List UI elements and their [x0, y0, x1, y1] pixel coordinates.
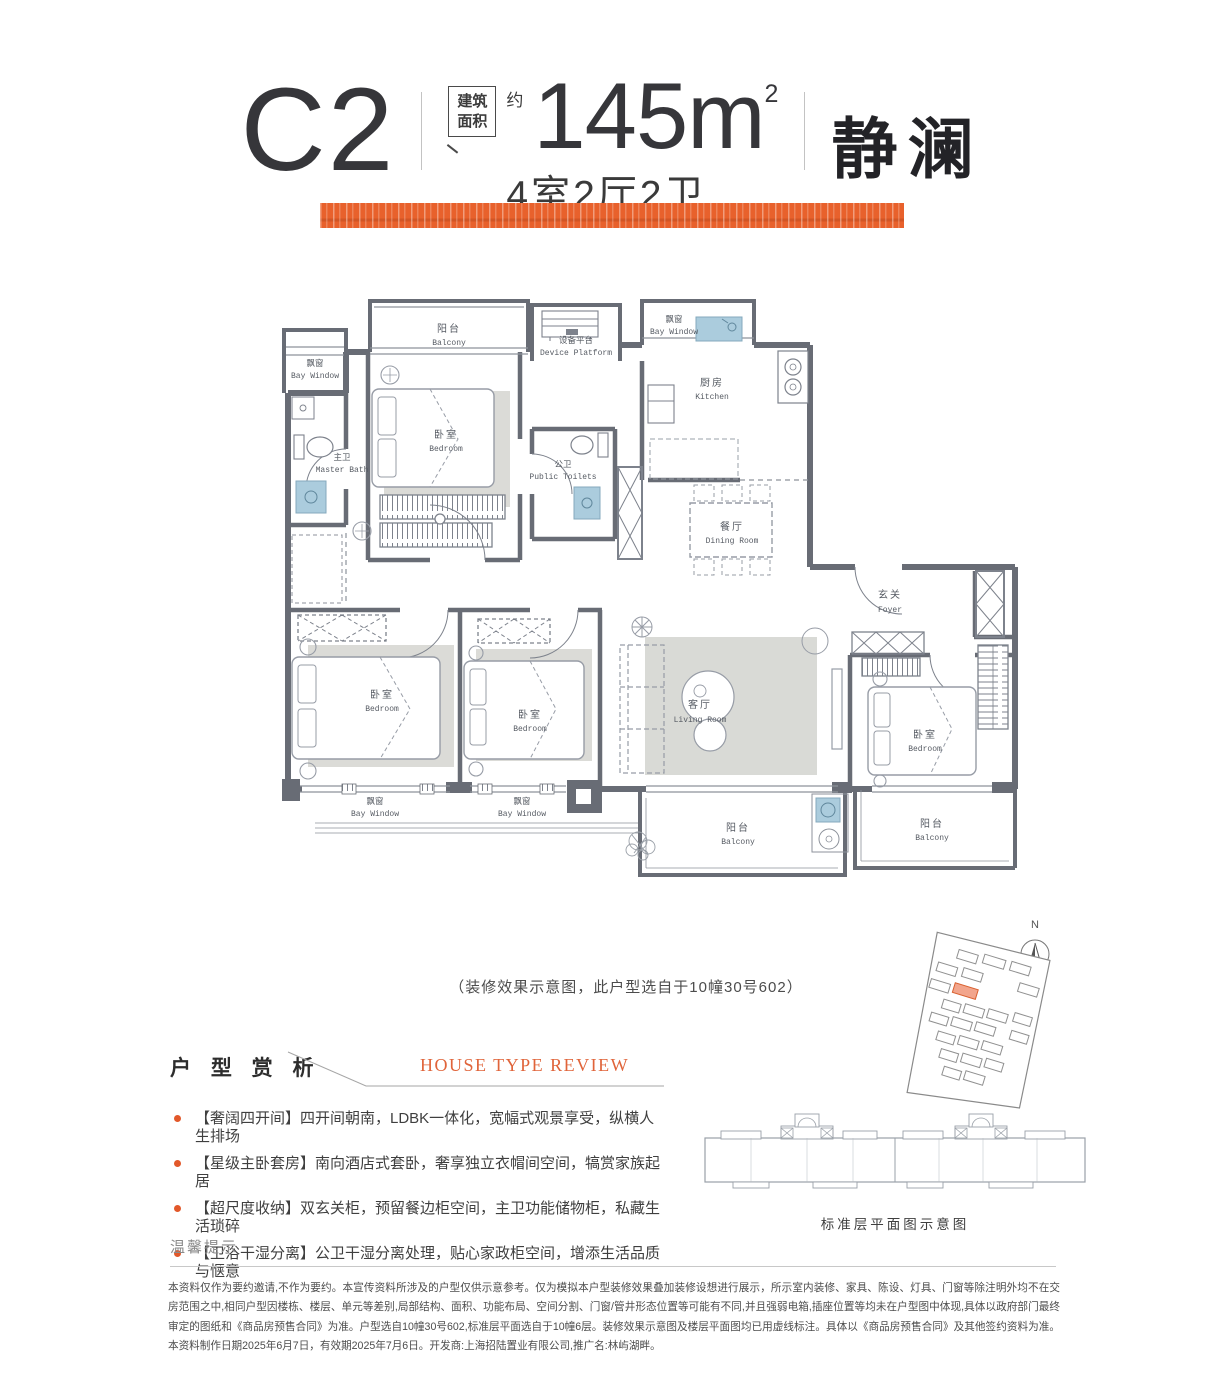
svg-text:卧室: 卧室 [913, 728, 937, 741]
svg-text:Bay Window: Bay Window [650, 328, 698, 337]
area-block: 建筑 面积 约 145m 2 4室2厅2卫 [448, 76, 778, 220]
room-label-bay-window-bm: 飘窗 Bay Window [498, 796, 546, 819]
svg-text:Bay Window: Bay Window [291, 372, 339, 381]
master-bath-fixtures [292, 397, 333, 513]
svg-text:Balcony: Balcony [915, 834, 949, 843]
svg-text:飘窗: 飘窗 [513, 796, 530, 806]
svg-text:阳台: 阳台 [437, 322, 461, 335]
svg-text:飘窗: 飘窗 [366, 796, 383, 806]
flyer-page: C2 建筑 面积 约 145m 2 4室2厅2卫 静澜 [0, 0, 1224, 1400]
washer-icon [812, 794, 848, 852]
review-bullets: 【奢阔四开间】四开间朝南，LDBK一体化，宽幅式观景享受，纵横人生排场 【星级主… [170, 1110, 664, 1281]
svg-text:餐厅: 餐厅 [720, 520, 744, 533]
svg-text:飘窗: 飘窗 [665, 314, 682, 324]
room-label-public-toilets: 公卫 Public Toilets [529, 459, 596, 482]
area-approx: 约 [506, 86, 523, 111]
stove-icon [778, 351, 808, 403]
svg-text:Balcony: Balcony [721, 838, 755, 847]
header-divider [421, 92, 422, 170]
unit-name: 静澜 [831, 96, 983, 192]
svg-text:客厅: 客厅 [688, 698, 712, 711]
svg-text:阳台: 阳台 [726, 821, 750, 834]
svg-text:Bay Window: Bay Window [351, 810, 399, 819]
svg-text:卧室: 卧室 [370, 688, 394, 701]
svg-text:Kitchen: Kitchen [695, 393, 729, 402]
review-bullet: 【奢阔四开间】四开间朝南，LDBK一体化，宽幅式观景享受，纵横人生排场 [170, 1110, 664, 1146]
svg-text:Living Room: Living Room [674, 716, 727, 725]
tips-title: 温馨提示 [170, 1236, 238, 1257]
unit-code: C2 [241, 76, 396, 185]
review-section: 户 型 赏 析 HOUSE TYPE REVIEW 【奢阔四开间】四开间朝南，L… [170, 1046, 664, 1290]
site-boundary [890, 927, 1063, 1117]
site-plan: N [885, 912, 1095, 1117]
svg-text:阳台: 阳台 [920, 817, 944, 830]
bed-icons [292, 366, 976, 787]
room-label-balcony-br: 阳台 Balcony [915, 817, 949, 843]
room-label-kitchen: 厨房 Kitchen [695, 376, 729, 402]
svg-text:Dining Room: Dining Room [706, 537, 759, 546]
floor-plate-drawing [693, 1104, 1097, 1204]
floor-plate-caption: 标准层平面图示意图 [693, 1213, 1097, 1233]
room-label-balcony-top: 阳台 Balcony [432, 322, 466, 348]
bullet-dot-icon [174, 1115, 181, 1122]
svg-text:Public Toilets: Public Toilets [529, 473, 596, 482]
svg-text:Bedroom: Bedroom [365, 705, 399, 714]
fridge-icon [648, 385, 674, 423]
standard-floor-plate: 标准层平面图示意图 [693, 1104, 1097, 1233]
review-bullet: 【卫浴干湿分离】公卫干湿分离处理，贴心家政柜空间，增添生活品质与惬意 [170, 1245, 664, 1281]
area-sup: 2 [765, 80, 779, 109]
bullet-dot-icon [174, 1160, 181, 1167]
svg-text:玄关: 玄关 [878, 588, 902, 601]
room-label-bay-window-bl: 飘窗 Bay Window [351, 796, 399, 819]
header-divider [804, 92, 805, 170]
svg-text:N: N [1031, 919, 1039, 931]
review-title-en: HOUSE TYPE REVIEW [420, 1055, 629, 1076]
room-label-bay-window-tl: 飘窗 Bay Window [291, 358, 339, 381]
review-header: 户 型 赏 析 HOUSE TYPE REVIEW [170, 1046, 664, 1092]
orange-banner [320, 203, 904, 228]
svg-text:Bedroom: Bedroom [429, 445, 463, 454]
review-bullet: 【星级主卧套房】南向酒店式套卧，奢享独立衣帽间空间，犒赏家族起居 [170, 1155, 664, 1191]
kitchen-sink-icon [696, 317, 742, 341]
svg-text:设备平台: 设备平台 [559, 335, 593, 345]
plan-caption: （装修效果示意图，此户型选自于10幢30号602） [286, 976, 966, 997]
svg-text:Master Bath: Master Bath [316, 466, 369, 475]
disclaimer-text: 本资料仅作为要约邀请,不作为要约。本宣传资料所涉及的户型仅供示意参考。仅为模拟本… [168, 1279, 1060, 1356]
svg-text:Device Platform: Device Platform [540, 349, 612, 358]
svg-text:Bay Window: Bay Window [498, 810, 546, 819]
room-label-foyer: 玄关 Foyer [878, 588, 902, 615]
svg-text:卧室: 卧室 [434, 428, 458, 441]
svg-text:主卫: 主卫 [333, 452, 351, 462]
tv-cabinet-icon [832, 669, 842, 749]
review-bullet: 【超尺度收纳】双玄关柜，预留餐边柜空间，主卫功能储物柜，私藏生活琐碎 [170, 1200, 664, 1236]
svg-text:公卫: 公卫 [554, 459, 572, 469]
bullet-dot-icon [174, 1205, 181, 1212]
svg-text:Bedroom: Bedroom [513, 725, 547, 734]
svg-text:厨房: 厨房 [700, 376, 724, 389]
svg-text:飘窗: 飘窗 [306, 358, 323, 368]
kitchen-counter-icon [650, 439, 738, 479]
area-label-line2: 面积 [457, 112, 487, 132]
area-label-line1: 建筑 [457, 92, 487, 112]
svg-text:Balcony: Balcony [432, 339, 466, 348]
room-label-balcony-mid: 阳台 Balcony [721, 821, 755, 847]
area-label-tail [447, 144, 458, 153]
area-value: 145m [533, 76, 764, 156]
floor-plan: 飘窗 Bay Window 阳台 Balcony 设备平台 Device Pla… [280, 289, 1036, 885]
room-label-bay-window-tr: 飘窗 Bay Window [650, 314, 698, 337]
svg-text:Foyer: Foyer [878, 606, 902, 615]
tips-divider [170, 1266, 1056, 1267]
pier-column [576, 789, 591, 804]
room-label-device-platform: 设备平台 Device Platform [540, 335, 612, 358]
wall-piers [282, 779, 1016, 813]
area-label-box: 建筑 面积 [448, 86, 496, 137]
svg-text:Bedroom: Bedroom [908, 745, 942, 754]
svg-text:卧室: 卧室 [518, 708, 542, 721]
header: C2 建筑 面积 约 145m 2 4室2厅2卫 静澜 [0, 76, 1224, 220]
walls [284, 301, 1015, 875]
